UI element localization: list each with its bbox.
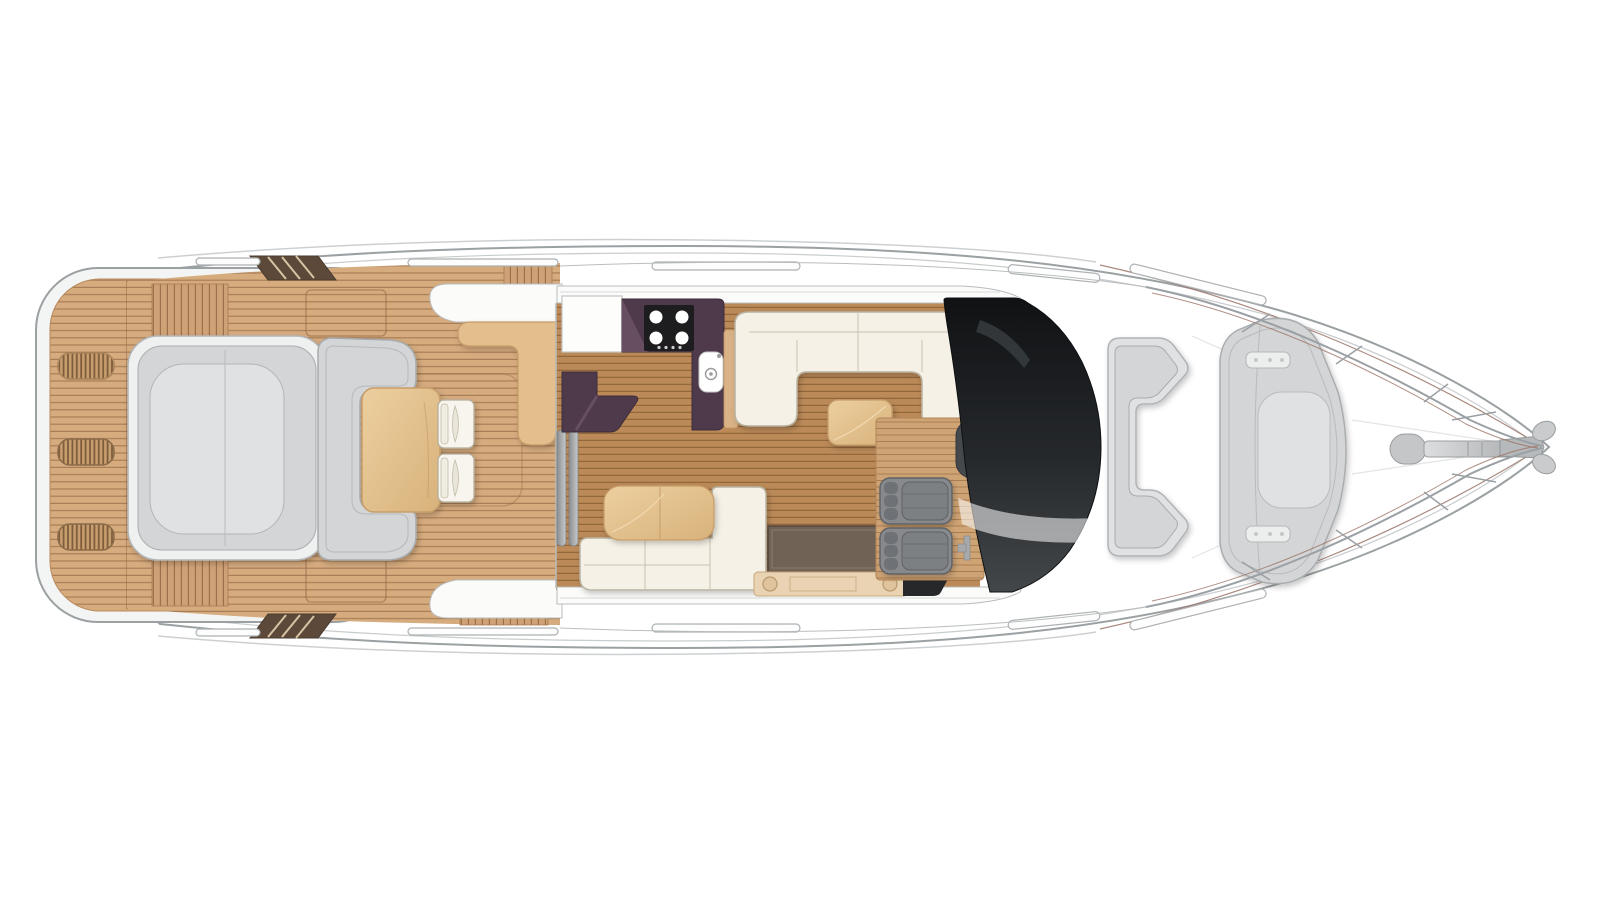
sink-handle	[717, 354, 721, 358]
side-steps-top-left	[152, 284, 228, 340]
deckhouse-corner-top	[430, 284, 562, 322]
windlass-pedestal	[1390, 434, 1426, 464]
cockpit-chair-2	[438, 454, 474, 502]
dinette-table	[604, 486, 714, 540]
yacht-deck-plan	[0, 0, 1600, 900]
deck-grille-3	[58, 524, 114, 550]
speaker-left	[763, 577, 777, 591]
hob	[644, 305, 694, 351]
helm-seat-2	[880, 528, 952, 574]
deck-plan-canvas	[0, 0, 1600, 900]
galley-worktop	[562, 296, 622, 352]
deck-grille-2	[58, 439, 114, 465]
sunpad-mounting-plate-top	[1246, 352, 1290, 368]
cockpit-table	[362, 388, 440, 512]
helm-seat-1	[880, 478, 952, 524]
hob-burner-3	[650, 332, 663, 345]
cockpit-chair-1	[438, 400, 474, 448]
hob-burner-2	[676, 311, 689, 324]
hob-burner-1	[650, 311, 663, 324]
deckhouse-corner-bottom	[430, 580, 562, 618]
aft-sun-lounge	[128, 336, 326, 560]
sunpad-mounting-plate-bottom	[1246, 526, 1290, 542]
galley-sink	[699, 352, 723, 392]
hob-burner-4	[676, 332, 689, 345]
deck-grille-1	[58, 353, 114, 379]
